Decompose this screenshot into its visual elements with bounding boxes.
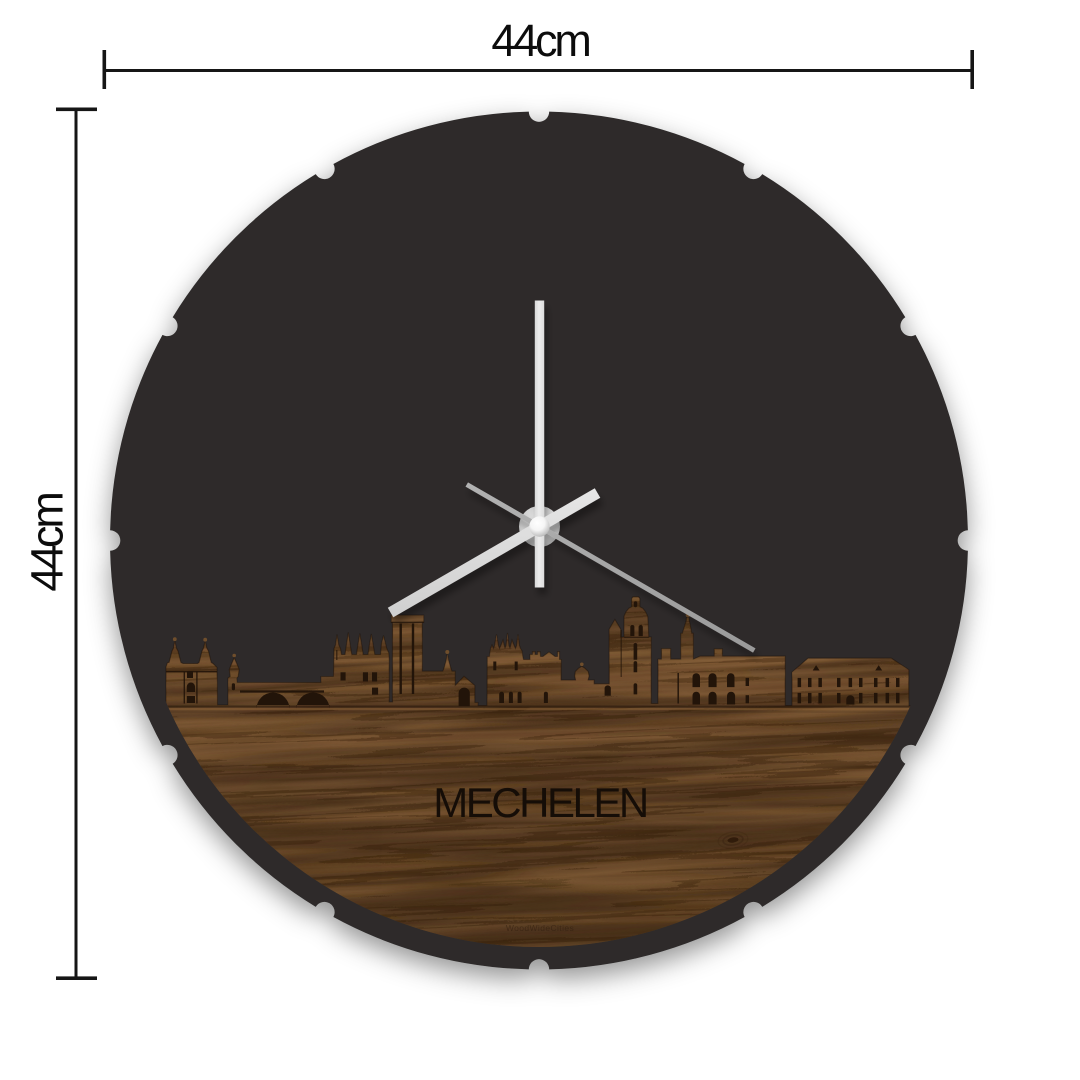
svg-text:WoodWideCities: WoodWideCities bbox=[506, 923, 574, 933]
svg-text:44cm: 44cm bbox=[22, 494, 73, 592]
svg-text:44cm: 44cm bbox=[491, 15, 589, 66]
svg-text:MECHELEN: MECHELEN bbox=[433, 779, 646, 826]
